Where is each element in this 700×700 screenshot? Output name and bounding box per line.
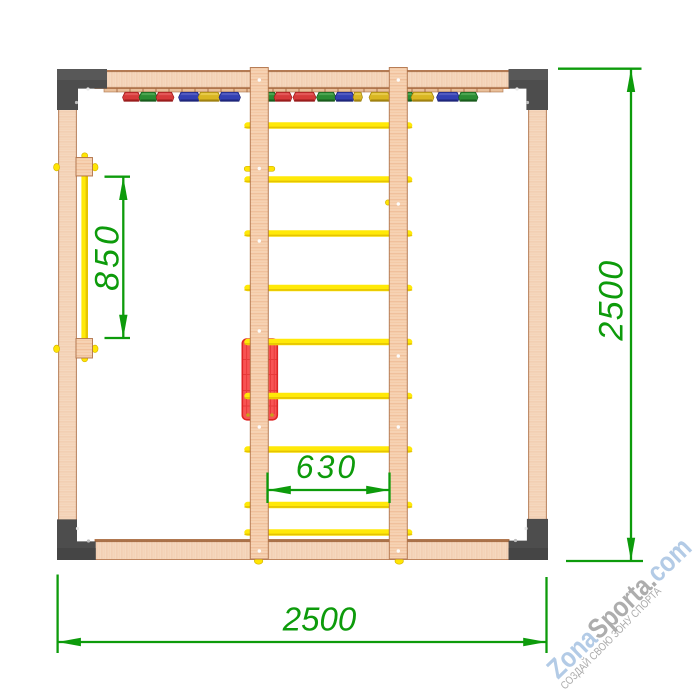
svg-text:850: 850 (88, 222, 126, 291)
svg-text:2500: 2500 (593, 259, 631, 341)
svg-text:630: 630 (296, 449, 358, 485)
svg-text:2500: 2500 (282, 601, 357, 638)
